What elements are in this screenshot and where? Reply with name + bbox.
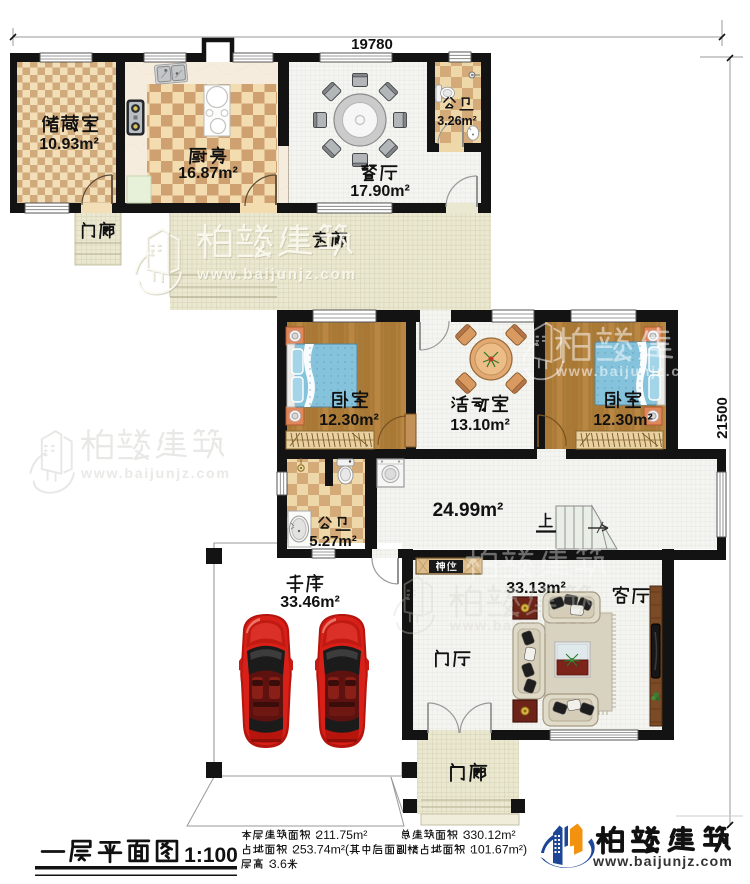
svg-text:24.99m²: 24.99m² <box>433 500 504 521</box>
svg-text:253.74m²(: 253.74m²( <box>293 843 350 857</box>
svg-text:33.46m²: 33.46m² <box>280 594 340 611</box>
svg-text:21500: 21500 <box>714 397 731 439</box>
svg-text:5.27m²: 5.27m² <box>309 533 357 550</box>
svg-text:10.93m²: 10.93m² <box>39 136 99 153</box>
svg-text:211.75m²: 211.75m² <box>316 828 367 842</box>
svg-text:13.10m²: 13.10m² <box>450 417 510 434</box>
svg-text:1:100: 1:100 <box>184 844 238 867</box>
svg-text:www.baijunjz.com: www.baijunjz.com <box>449 617 598 633</box>
svg-text:3.6: 3.6 <box>270 857 287 871</box>
svg-text:12.30m²: 12.30m² <box>319 412 379 429</box>
svg-text:330.12m²: 330.12m² <box>464 828 516 842</box>
svg-text:16.87m²: 16.87m² <box>178 165 238 182</box>
svg-text:www.baijunjz.com: www.baijunjz.com <box>196 266 357 283</box>
svg-text:17.90m²: 17.90m² <box>350 183 410 200</box>
svg-text:3.26m²: 3.26m² <box>437 114 477 128</box>
svg-text:www.baijunjz.com: www.baijunjz.com <box>592 854 733 870</box>
svg-text:www.baijunjz.com: www.baijunjz.com <box>555 364 706 380</box>
svg-text:19780: 19780 <box>351 36 393 53</box>
svg-text:12.30m²: 12.30m² <box>593 412 653 429</box>
svg-text:101.67m²): 101.67m²) <box>471 843 527 857</box>
svg-text:www.baijunjz.com: www.baijunjz.com <box>80 466 231 482</box>
